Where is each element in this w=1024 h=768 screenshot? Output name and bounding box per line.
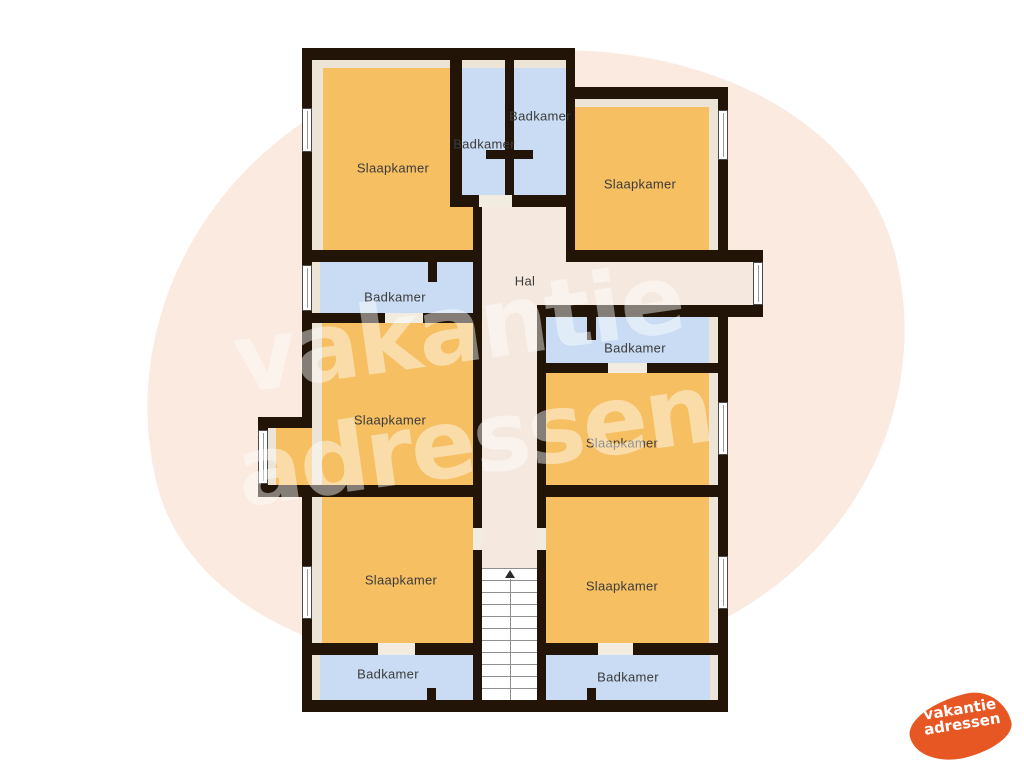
logo-vakantieadressen: vakantie adressen <box>903 692 1019 764</box>
window <box>718 556 728 609</box>
edge-strip <box>312 262 320 313</box>
room-label: Slaapkamer <box>586 579 658 594</box>
edge-strip <box>462 60 566 68</box>
hall-lobby <box>482 203 566 262</box>
room-label: Hal <box>515 274 535 289</box>
window <box>258 430 268 484</box>
room-label: Slaapkamer <box>365 573 437 588</box>
wall <box>566 250 763 262</box>
room-slaapkamer-top-left <box>312 60 473 250</box>
edge-strip <box>312 497 322 643</box>
room-slaapkamer-mid-right <box>546 373 718 485</box>
wall <box>302 250 482 262</box>
wall <box>473 195 482 712</box>
door-opening <box>537 528 546 550</box>
room-label: Slaapkamer <box>357 161 429 176</box>
wall <box>587 688 596 702</box>
room-slaapkamer-mid-left <box>312 323 473 485</box>
edge-strip <box>312 655 320 700</box>
edge-strip <box>709 99 718 250</box>
wall <box>537 485 728 497</box>
room-label: Slaapkamer <box>586 436 658 451</box>
edge-strip <box>710 655 718 700</box>
door-opening <box>479 195 512 207</box>
floorplan: SlaapkamerBadkamerBadkamerSlaapkamerBadk… <box>0 0 1024 768</box>
room-label: Badkamer <box>453 137 515 152</box>
edge-strip <box>268 428 276 485</box>
wall <box>587 317 596 340</box>
wall <box>537 305 763 317</box>
room-slaapkamer-top-right <box>575 99 718 250</box>
wall <box>427 688 436 702</box>
wall <box>450 195 575 207</box>
room-slaapkamer-bottom-right <box>546 497 718 643</box>
window <box>753 262 763 305</box>
room-label: Slaapkamer <box>354 413 426 428</box>
door-opening <box>378 643 415 655</box>
wall <box>566 48 575 262</box>
room-badkamer-mid-left <box>312 262 473 313</box>
room-label: Slaapkamer <box>604 177 676 192</box>
edge-strip <box>312 60 473 68</box>
wall <box>302 48 312 417</box>
window <box>302 108 312 152</box>
door-opening <box>598 643 633 655</box>
window <box>302 566 312 619</box>
edge-strip <box>709 497 718 643</box>
wall <box>566 87 728 99</box>
wall <box>258 485 477 497</box>
room-label: Badkamer <box>597 670 659 685</box>
door-opening <box>473 528 482 550</box>
staircase <box>482 568 537 700</box>
wall <box>302 700 728 712</box>
edge-strip <box>709 317 718 363</box>
room-label: Badkamer <box>604 341 666 356</box>
edge-strip <box>312 60 323 250</box>
room-label: Badkamer <box>509 109 571 124</box>
window <box>718 110 728 160</box>
wall <box>302 48 575 60</box>
room-slaapkamer-bottom-left <box>312 497 473 643</box>
edge-strip <box>575 99 718 107</box>
room-label: Badkamer <box>357 667 419 682</box>
door-opening <box>385 313 423 323</box>
wall <box>450 48 462 207</box>
edge-strip <box>312 323 322 485</box>
window <box>302 265 312 311</box>
room-label: Badkamer <box>364 290 426 305</box>
wall <box>428 262 437 282</box>
room-badkamer-stall-right <box>514 60 566 195</box>
edge-strip <box>709 373 718 485</box>
room-badkamer-stall-left <box>462 60 505 195</box>
floorplan-image: SlaapkamerBadkamerBadkamerSlaapkamerBadk… <box>0 0 1024 768</box>
window <box>718 402 728 455</box>
door-opening <box>608 363 647 373</box>
